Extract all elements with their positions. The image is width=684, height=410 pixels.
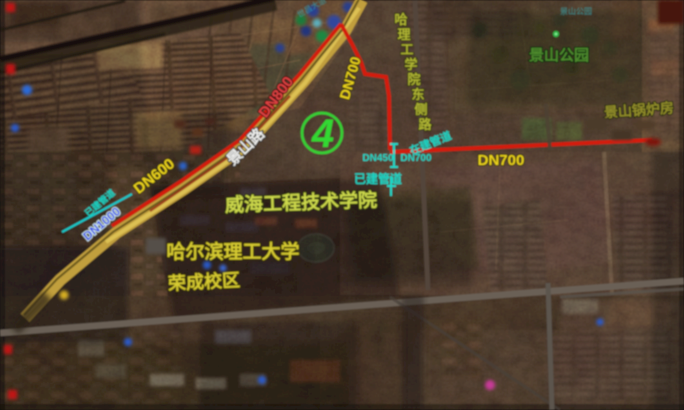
svg-text:路: 路 (418, 117, 432, 132)
svg-text:哈: 哈 (394, 12, 407, 27)
svg-text:理: 理 (397, 27, 410, 42)
svg-text:DN700: DN700 (478, 152, 525, 169)
svg-text:学: 学 (404, 57, 417, 72)
svg-text:景山公园: 景山公园 (529, 46, 589, 64)
svg-text:DN450: DN450 (362, 153, 394, 164)
svg-text:荣成校区: 荣成校区 (167, 269, 241, 294)
svg-text:景山公园: 景山公园 (560, 6, 592, 16)
svg-text:哈尔滨理工大学: 哈尔滨理工大学 (166, 240, 299, 263)
svg-text:院: 院 (407, 72, 420, 87)
svg-text:已建管道: 已建管道 (354, 171, 402, 186)
svg-text:东: 东 (411, 87, 424, 102)
svg-text:4: 4 (311, 112, 334, 156)
svg-text:侧: 侧 (414, 102, 427, 117)
svg-text:工: 工 (400, 42, 413, 57)
